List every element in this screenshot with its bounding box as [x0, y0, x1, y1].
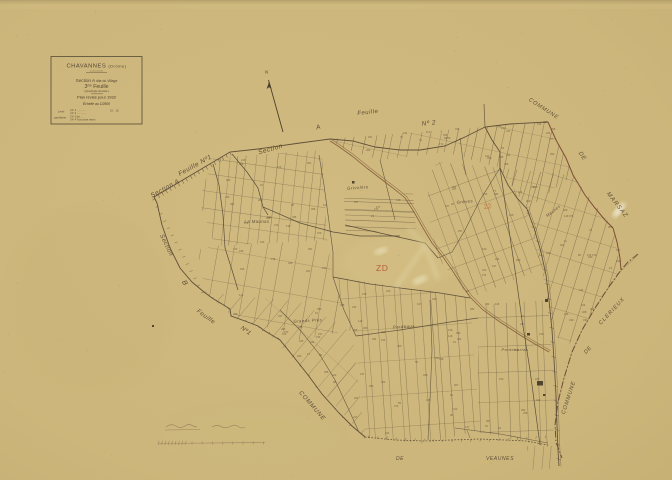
svg-text:212: 212 — [453, 407, 458, 411]
svg-text:451: 451 — [368, 135, 373, 139]
svg-text:374: 374 — [274, 223, 279, 227]
svg-text:158: 158 — [432, 297, 437, 301]
svg-text:337: 337 — [583, 318, 588, 322]
svg-text:289: 289 — [233, 312, 238, 316]
svg-text:197: 197 — [360, 372, 365, 376]
svg-text:317: 317 — [318, 332, 323, 336]
svg-text:349: 349 — [569, 318, 574, 322]
svg-text:290: 290 — [526, 199, 531, 203]
svg-text:246: 246 — [298, 325, 303, 329]
svg-text:342: 342 — [226, 178, 231, 182]
svg-text:127: 127 — [616, 248, 621, 252]
svg-text:282: 282 — [258, 198, 263, 202]
svg-text:307: 307 — [454, 383, 459, 387]
svg-text:345: 345 — [288, 261, 293, 265]
svg-text:396: 396 — [456, 331, 461, 335]
svg-text:389: 389 — [608, 225, 613, 229]
svg-text:125: 125 — [509, 213, 514, 217]
svg-text:399: 399 — [423, 373, 428, 377]
svg-text:{ Nº 2 ..............: { Nº 2 .............. — [70, 111, 86, 115]
svg-text:329: 329 — [546, 251, 551, 255]
svg-text:171: 171 — [439, 142, 444, 146]
svg-text:220: 220 — [535, 377, 540, 381]
svg-text:432: 432 — [616, 259, 621, 263]
svg-text:156: 156 — [499, 155, 504, 159]
svg-text:Échelle au 1/2500: Échelle au 1/2500 — [83, 101, 110, 106]
svg-text:404: 404 — [372, 337, 377, 341]
svg-text:387: 387 — [486, 419, 491, 423]
svg-text:369: 369 — [369, 384, 374, 388]
svg-text:172: 172 — [233, 247, 238, 251]
svg-text:117: 117 — [426, 130, 431, 134]
svg-text:19 . . 32: 19 . . 32 — [110, 110, 119, 113]
svg-text:216: 216 — [241, 158, 246, 162]
svg-text:397: 397 — [308, 247, 313, 251]
svg-text:267: 267 — [354, 396, 359, 400]
svg-text:142: 142 — [239, 293, 244, 297]
svg-text:165: 165 — [426, 398, 431, 402]
svg-text:463: 463 — [504, 162, 509, 166]
svg-text:139: 139 — [564, 312, 569, 316]
svg-text:312: 312 — [483, 192, 488, 196]
svg-text:468: 468 — [582, 310, 587, 314]
svg-text:Levés: Levés — [58, 111, 65, 114]
svg-text:459: 459 — [487, 156, 492, 160]
svg-text:VEAUNES: VEAUNES — [486, 456, 514, 462]
svg-text:358: 358 — [353, 328, 358, 332]
svg-text:140: 140 — [396, 198, 401, 202]
svg-text:403: 403 — [260, 240, 265, 244]
svg-text:140: 140 — [358, 319, 363, 323]
svg-text:318: 318 — [439, 357, 444, 361]
svg-text:107: 107 — [354, 200, 359, 204]
svg-text:250: 250 — [397, 344, 402, 348]
svg-text:197: 197 — [417, 302, 422, 306]
svg-text:293: 293 — [543, 120, 548, 124]
svg-text:345: 345 — [455, 127, 460, 131]
svg-text:160: 160 — [386, 289, 391, 293]
svg-text:308: 308 — [311, 207, 316, 211]
svg-text:374: 374 — [394, 404, 399, 408]
svg-text:197: 197 — [492, 264, 497, 268]
svg-text:129: 129 — [448, 334, 453, 338]
svg-text:261: 261 — [546, 131, 551, 135]
svg-text:373: 373 — [592, 253, 597, 257]
svg-text:DE: DE — [396, 456, 404, 462]
svg-text:158: 158 — [362, 292, 367, 296]
svg-text:379: 379 — [317, 231, 322, 235]
svg-text:138: 138 — [286, 224, 291, 228]
svg-text:155: 155 — [533, 185, 538, 189]
svg-text:277: 277 — [376, 205, 381, 209]
svg-text:474: 474 — [537, 122, 542, 126]
svg-text:parcellaires: parcellaires — [53, 117, 67, 120]
svg-text:150: 150 — [322, 266, 327, 270]
svg-text:22: 22 — [483, 203, 492, 211]
svg-text:217: 217 — [353, 415, 358, 419]
svg-text:La Maunas: La Maunas — [244, 219, 270, 224]
svg-text:124: 124 — [518, 190, 523, 194]
svg-text:354: 354 — [443, 133, 448, 137]
svg-text:356: 356 — [317, 307, 322, 311]
svg-text:471: 471 — [482, 273, 487, 277]
svg-text:382: 382 — [452, 185, 457, 189]
svg-text:127: 127 — [465, 425, 470, 429]
svg-text:257: 257 — [458, 229, 463, 233]
svg-text:420: 420 — [381, 330, 386, 334]
svg-text:316: 316 — [225, 195, 230, 199]
svg-text:412: 412 — [332, 373, 337, 377]
svg-text:119: 119 — [323, 203, 328, 207]
svg-text:356: 356 — [239, 162, 244, 166]
svg-text:190: 190 — [499, 377, 504, 381]
svg-text:444: 444 — [457, 337, 462, 341]
svg-text:297: 297 — [435, 356, 440, 360]
svg-text:269: 269 — [366, 148, 371, 152]
svg-text:284: 284 — [494, 192, 499, 196]
svg-text:Pontcharras: Pontcharras — [501, 347, 528, 352]
svg-text:160: 160 — [482, 247, 487, 251]
svg-text:372: 372 — [482, 268, 487, 272]
svg-text:404: 404 — [381, 380, 386, 384]
svg-text:205: 205 — [281, 327, 286, 331]
svg-text:224: 224 — [385, 431, 390, 435]
svg-text:134: 134 — [579, 288, 584, 292]
svg-text:Plan révisé pour 1932: Plan révisé pour 1932 — [77, 95, 117, 100]
svg-text:392: 392 — [521, 408, 526, 412]
svg-text:334: 334 — [310, 340, 315, 344]
svg-text:181: 181 — [306, 269, 311, 273]
svg-text:197: 197 — [445, 204, 450, 208]
svg-text:155: 155 — [240, 267, 245, 271]
svg-text:152: 152 — [381, 338, 386, 342]
svg-text:154: 154 — [495, 257, 500, 261]
svg-text:au lieu annexe: au lieu annexe — [90, 71, 104, 73]
svg-text:282: 282 — [470, 307, 475, 311]
svg-text:146: 146 — [448, 328, 453, 332]
svg-text:347: 347 — [278, 314, 283, 318]
svg-text:417: 417 — [506, 129, 511, 133]
svg-text:385: 385 — [340, 303, 345, 307]
svg-text:( Quadruple étendue ): ( Quadruple étendue ) — [84, 89, 110, 93]
svg-text:421: 421 — [506, 153, 511, 157]
svg-text:349: 349 — [239, 249, 244, 253]
svg-text:418: 418 — [539, 332, 544, 336]
svg-text:392: 392 — [485, 302, 490, 306]
svg-text:129: 129 — [277, 165, 282, 169]
svg-text:{ Nº 4 Tous droits réserv.: { Nº 4 Tous droits réserv. — [70, 118, 96, 122]
svg-text:180: 180 — [588, 255, 593, 259]
svg-text:ZD: ZD — [376, 263, 388, 273]
svg-text:341: 341 — [403, 131, 408, 135]
svg-text:289: 289 — [516, 258, 521, 262]
svg-text:232: 232 — [352, 305, 357, 309]
svg-text:361: 361 — [230, 202, 235, 206]
svg-text:Section A dite du Village: Section A dite du Village — [76, 78, 118, 83]
svg-text:351: 351 — [307, 161, 312, 165]
svg-text:476: 476 — [569, 214, 574, 218]
svg-text:352: 352 — [550, 152, 555, 156]
svg-text:404: 404 — [560, 243, 565, 247]
svg-text:118: 118 — [495, 302, 500, 306]
svg-text:355: 355 — [590, 307, 595, 311]
svg-text:203: 203 — [297, 354, 302, 358]
svg-text:435: 435 — [299, 339, 304, 343]
svg-text:474: 474 — [282, 332, 287, 336]
svg-text:268: 268 — [292, 215, 297, 219]
svg-text:355: 355 — [324, 370, 329, 374]
svg-text:277: 277 — [549, 137, 554, 141]
svg-text:237: 237 — [520, 322, 525, 326]
svg-text:443: 443 — [536, 398, 541, 402]
svg-text:296: 296 — [551, 127, 556, 131]
svg-text:320: 320 — [563, 208, 568, 212]
svg-text:214: 214 — [581, 303, 586, 307]
svg-text:206: 206 — [363, 326, 368, 330]
